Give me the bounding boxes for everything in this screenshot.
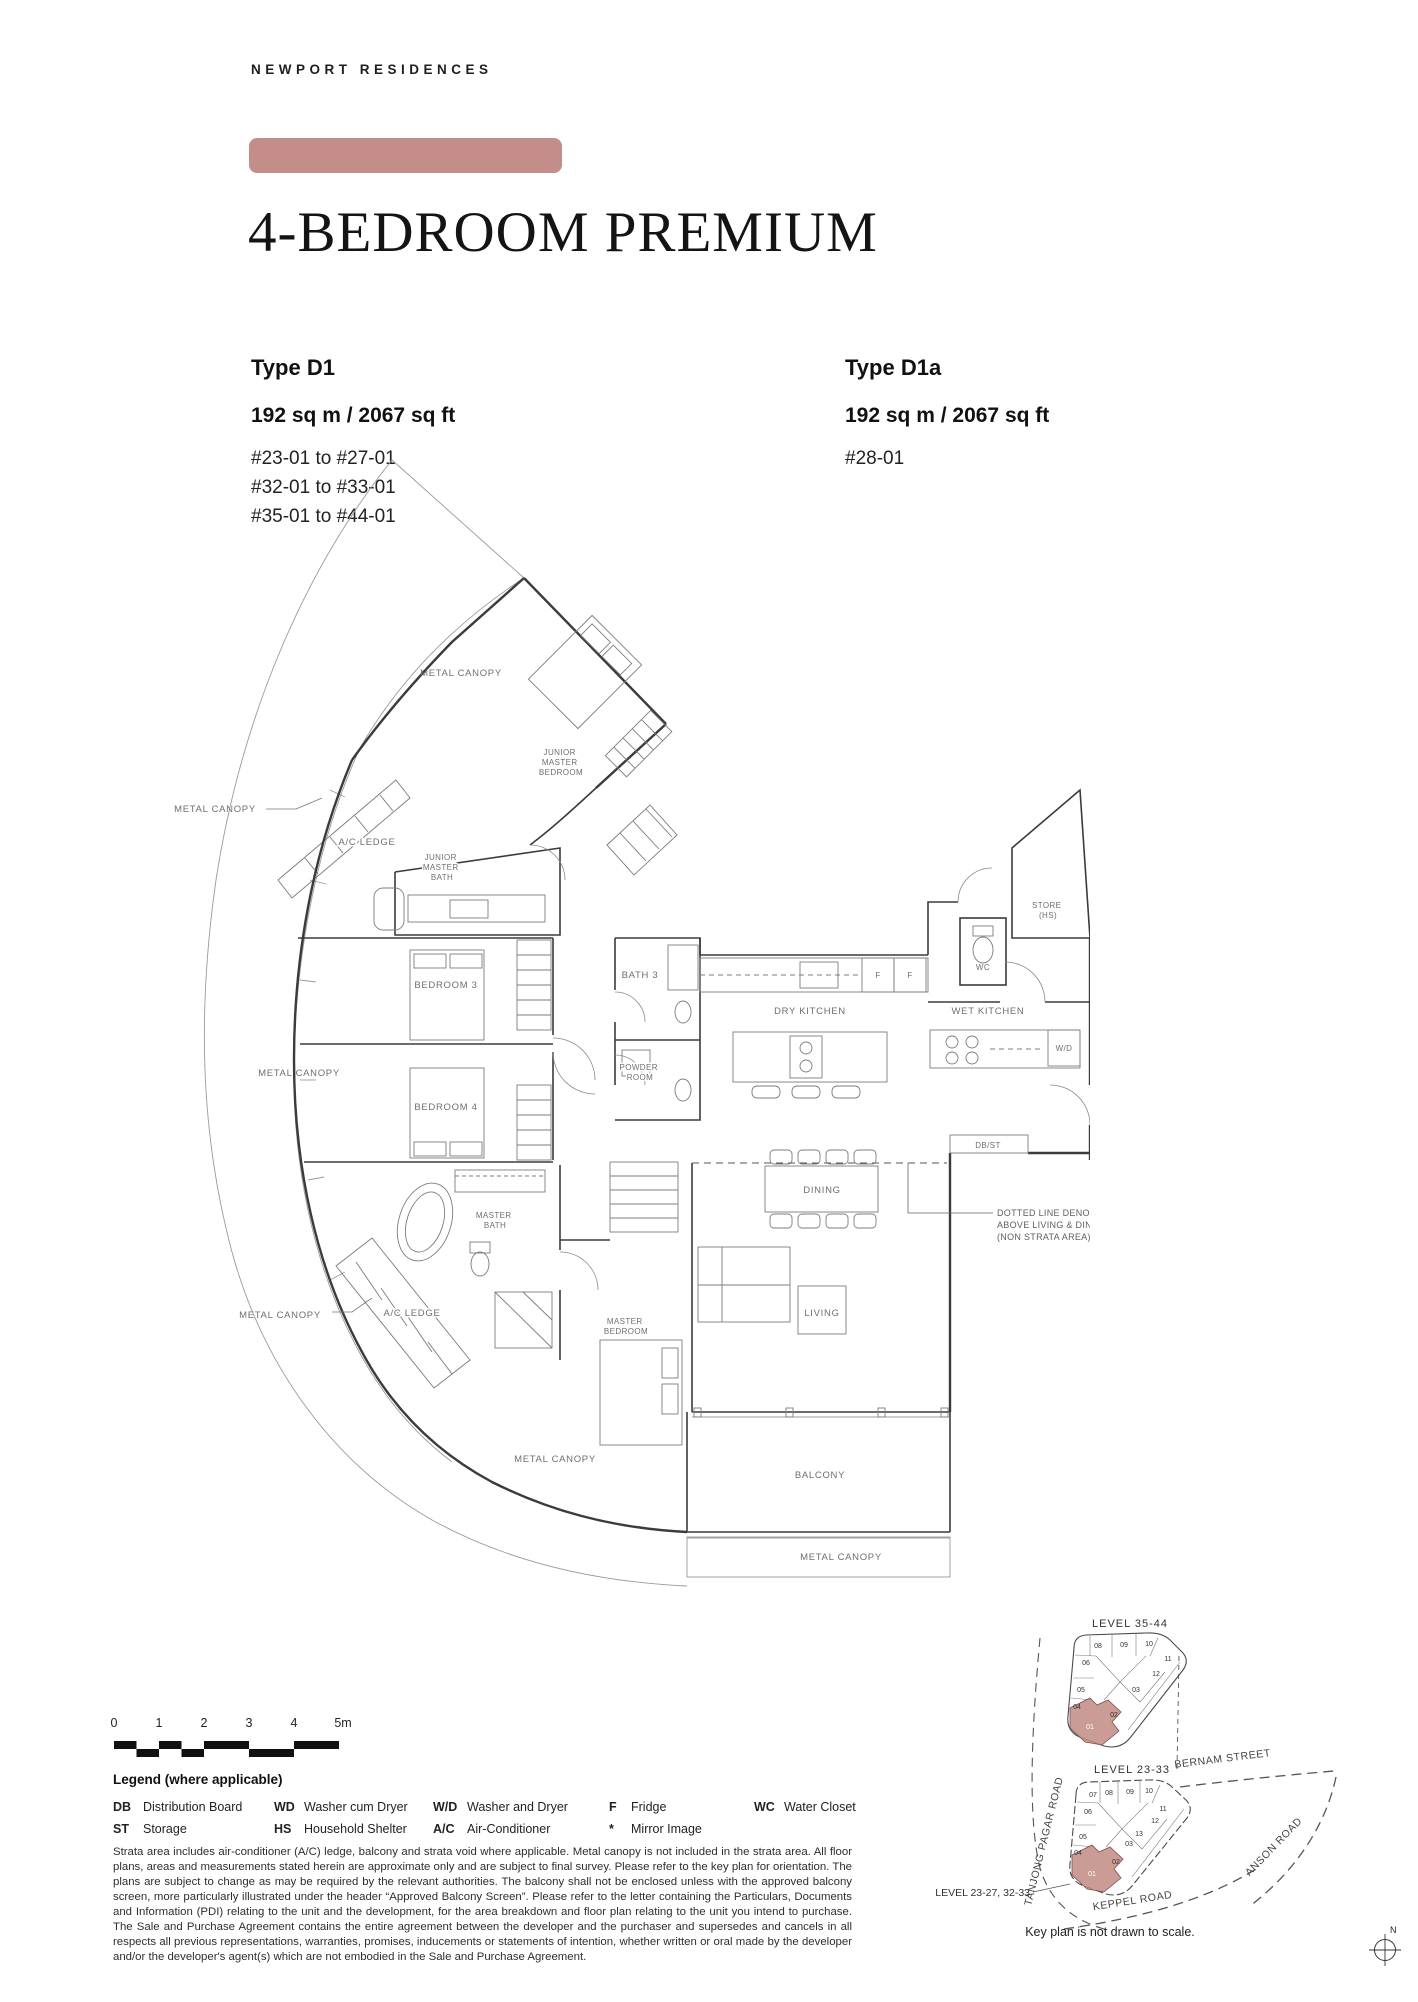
brand-title: NEWPORT RESIDENCES — [251, 62, 493, 77]
furniture — [374, 615, 1080, 1538]
svg-text:11: 11 — [1164, 1656, 1171, 1663]
svg-text:5m: 5m — [334, 1716, 351, 1730]
svg-text:13: 13 — [1135, 1831, 1143, 1838]
svg-text:09: 09 — [1126, 1789, 1134, 1796]
room-label-powder-room: POWDER ROOM — [619, 1063, 660, 1082]
legend-column: DBDistribution Board STStorage — [113, 1796, 242, 1840]
svg-text:01: 01 — [1086, 1724, 1094, 1731]
legend-column: FFridge *Mirror Image — [609, 1796, 702, 1840]
label-db-st: DB/ST — [975, 1141, 1001, 1150]
scale-bar: 0 1 2 3 4 5m — [100, 1705, 370, 1765]
legend-label: Fridge — [631, 1796, 666, 1818]
room-label-junior-master-bath: JUNIOR MASTER BATH — [423, 853, 461, 882]
ac-ledge-band-jmb — [607, 805, 677, 875]
room-label-metal-canopy: METAL CANOPY — [239, 1310, 321, 1321]
room-label-ac-ledge: A/C LEDGE — [384, 1308, 441, 1319]
keyplan-note: Key plan is not drawn to scale. — [1025, 1925, 1195, 1939]
room-label-metal-canopy: METAL CANOPY — [420, 668, 502, 679]
svg-text:02: 02 — [1110, 1712, 1118, 1719]
svg-text:4: 4 — [291, 1716, 298, 1730]
svg-text:11: 11 — [1159, 1806, 1166, 1813]
room-label-living: LIVING — [804, 1308, 839, 1319]
svg-text:02: 02 — [1112, 1859, 1120, 1866]
legend-label: Storage — [143, 1818, 187, 1840]
room-label-balcony: BALCONY — [795, 1470, 845, 1481]
legend-column: W/DWasher and Dryer A/CAir-Conditioner — [433, 1796, 568, 1840]
room-label-master-bath: MASTER BATH — [476, 1211, 514, 1230]
scale-bar-blocks — [114, 1741, 339, 1757]
room-label-ac-ledge: A/C LEDGE — [339, 837, 396, 848]
legend-label: Washer and Dryer — [467, 1796, 568, 1818]
room-label-master-bedroom: MASTER BEDROOM — [604, 1317, 648, 1336]
legend-abbr: * — [609, 1818, 631, 1840]
keyplan-callout: LEVEL 23-27, 32-33 — [935, 1887, 1030, 1899]
room-label-dry-kitchen: DRY KITCHEN — [774, 1006, 846, 1017]
room-label-metal-canopy: METAL CANOPY — [174, 804, 256, 815]
label-wd: W/D — [1056, 1044, 1073, 1053]
room-label-wet-kitchen: WET KITCHEN — [952, 1006, 1025, 1017]
road-label-bernam: BERNAM STREET — [1174, 1747, 1272, 1771]
legend-label: Mirror Image — [631, 1818, 702, 1840]
label-fridge: F — [875, 971, 880, 980]
svg-text:09: 09 — [1120, 1642, 1128, 1649]
room-label-bedroom-3: BEDROOM 3 — [414, 980, 477, 991]
svg-text:12: 12 — [1152, 1671, 1160, 1678]
type-d1-name: Type D1 — [251, 355, 335, 381]
legend-abbr: WD — [274, 1796, 304, 1818]
svg-text:12: 12 — [1151, 1818, 1159, 1825]
legend-label: Distribution Board — [143, 1796, 242, 1818]
svg-text:06: 06 — [1084, 1809, 1092, 1816]
compass-icon: N — [1369, 1925, 1401, 1966]
legend-abbr: HS — [274, 1818, 304, 1840]
floorplan-brochure-page: NEWPORT RESIDENCES 4-BEDROOM PREMIUM Typ… — [0, 0, 1418, 2002]
legend-label: Household Shelter — [304, 1818, 407, 1840]
legend-abbr: W/D — [433, 1796, 467, 1818]
compass-north-label: N — [1390, 1925, 1397, 1935]
high-ceiling-note: DOTTED LINE DENOTES HIGH CEILING ABOVE L… — [997, 1208, 1090, 1242]
room-label-store: STORE (HS) — [1032, 901, 1064, 920]
type-d1a-area: 192 sq m / 2067 sq ft — [845, 404, 1049, 428]
keyplan-upper: 08 09 10 11 12 06 05 04 03 02 01 — [1068, 1633, 1186, 1747]
room-label-metal-canopy: METAL CANOPY — [514, 1454, 596, 1465]
svg-text:08: 08 — [1094, 1643, 1102, 1650]
keyplan-upper-title: LEVEL 35-44 — [1092, 1618, 1168, 1630]
floor-plan: METAL CANOPY METAL CANOPY METAL CANOPY M… — [150, 440, 1090, 1600]
high-ceiling-dashed-line — [692, 1163, 993, 1213]
legend-abbr: DB — [113, 1796, 143, 1818]
room-label-dining: DINING — [803, 1185, 840, 1196]
svg-text:3: 3 — [246, 1716, 253, 1730]
legend-abbr: A/C — [433, 1818, 467, 1840]
room-label-bedroom-4: BEDROOM 4 — [414, 1102, 477, 1113]
svg-text:03: 03 — [1125, 1841, 1133, 1848]
svg-text:10: 10 — [1145, 1641, 1153, 1648]
scale-bar-ticks: 0 1 2 3 4 5m — [111, 1716, 352, 1730]
page-title: 4-BEDROOM PREMIUM — [248, 200, 878, 265]
svg-text:01: 01 — [1088, 1871, 1096, 1878]
room-label-metal-canopy: METAL CANOPY — [800, 1552, 882, 1563]
legend-label: Washer cum Dryer — [304, 1796, 408, 1818]
svg-text:0: 0 — [111, 1716, 118, 1730]
svg-text:2: 2 — [201, 1716, 208, 1730]
road-label-anson: ANSON ROAD — [1243, 1815, 1305, 1878]
svg-text:05: 05 — [1077, 1687, 1085, 1694]
keyplan-lower: 07 08 09 10 11 12 13 06 05 04 03 02 01 — [1070, 1780, 1190, 1895]
svg-text:08: 08 — [1105, 1790, 1113, 1797]
room-label-metal-canopy: METAL CANOPY — [258, 1068, 340, 1079]
svg-text:04: 04 — [1073, 1704, 1081, 1711]
room-label-junior-master-bedroom: JUNIOR MASTER BEDROOM — [539, 748, 583, 777]
svg-text:1: 1 — [156, 1716, 163, 1730]
accent-bar — [249, 138, 562, 173]
svg-text:04: 04 — [1074, 1850, 1082, 1857]
legend-abbr: F — [609, 1796, 631, 1818]
legend-abbr: ST — [113, 1818, 143, 1840]
svg-text:05: 05 — [1079, 1834, 1087, 1841]
svg-text:07: 07 — [1089, 1792, 1097, 1799]
interior-walls — [298, 788, 1090, 1532]
legend-label: Air-Conditioner — [467, 1818, 550, 1840]
svg-text:10: 10 — [1145, 1788, 1153, 1795]
room-label-wc: WC — [976, 963, 990, 972]
type-d1a-name: Type D1a — [845, 355, 941, 381]
svg-text:06: 06 — [1082, 1660, 1090, 1667]
label-fridge: F — [907, 971, 912, 980]
svg-text:03: 03 — [1132, 1687, 1140, 1694]
room-label-bath-3: BATH 3 — [622, 970, 659, 981]
road-lines — [1032, 1638, 1336, 1930]
legend-column: WDWasher cum Dryer HSHousehold Shelter — [274, 1796, 408, 1840]
keyplan-lower-title: LEVEL 23-33 — [1094, 1764, 1170, 1776]
type-d1-area: 192 sq m / 2067 sq ft — [251, 404, 455, 428]
key-plan-area: LEVEL 35-44 08 09 10 11 12 06 05 — [700, 1580, 1418, 2002]
